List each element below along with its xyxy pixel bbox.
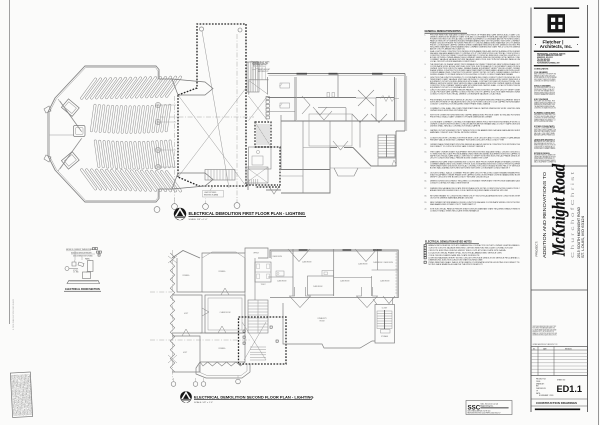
svg-text:NOVEMBER 1 1999: NOVEMBER 1 1999 [539, 395, 554, 397]
svg-text:LOFT: LOFT [184, 313, 188, 315]
svg-text:SWITCHES REMOVE FIELD ELECTRIC: SWITCHES REMOVE FIELD ELECTRIC [533, 326, 557, 328]
svg-text:Engineering, Inc.: Engineering, Inc. [481, 406, 494, 408]
svg-text:SSC: SSC [468, 405, 481, 412]
svg-text:SHEET NO:: SHEET NO: [557, 380, 566, 382]
svg-text:M.E.P. ENGINEER: M.E.P. ENGINEER [534, 99, 549, 101]
svg-text:TOILET: TOILET [261, 284, 266, 286]
svg-text:ELECTRICAL DEMOLITION FIRST FL: ELECTRICAL DEMOLITION FIRST FLOOR PLAN -… [189, 211, 306, 216]
svg-text:REVISION: REVISION [565, 348, 572, 350]
svg-text:LANDSCAPE ARCHITECT: LANDSCAPE ARCHITECT [534, 138, 556, 141]
svg-text:PROJECT NO:: PROJECT NO: [536, 379, 547, 381]
svg-text:ST. LOUIS, MO 63124: ST. LOUIS, MO 63124 [580, 215, 585, 258]
svg-text:REMOVE LIGHT: REMOVE LIGHT [258, 69, 270, 71]
svg-text:ADDITION AND RENOVATIONS TO: ADDITION AND RENOVATIONS TO [542, 172, 547, 258]
svg-text:PLUMBING CONSULTANT: PLUMBING CONSULTANT [534, 111, 556, 114]
svg-text:ELECTRICAL DEMOLITION SECOND F: ELECTRICAL DEMOLITION SECOND FLOOR PLAN … [194, 394, 313, 399]
svg-text:CIVIL ENGINEER: CIVIL ENGINEER [534, 72, 548, 74]
svg-text:S: PROJ 21006 ELEC ED11.DWG 1: S: PROJ 21006 ELEC ED11.DWG 11/01/99 [13, 299, 15, 330]
svg-text:PROJECT:: PROJECT: [534, 241, 538, 257]
svg-text:OWNER FIELD EXISTING FIXTURES: OWNER FIELD EXISTING FIXTURES FIE [430, 110, 467, 112]
svg-text:LOFT: LOFT [183, 352, 187, 354]
svg-text:EXISTING ROOF OVER: EXISTING ROOF OVER [252, 62, 270, 64]
svg-text:SCALE: 1/8" = 1'-0": SCALE: 1/8" = 1'-0" [189, 218, 208, 221]
svg-text:ELECTRICAL DEMOLITION KEYED NO: ELECTRICAL DEMOLITION KEYED NOTES [425, 241, 472, 244]
svg-text:ROBING: ROBING [219, 348, 226, 350]
svg-text:ELECTRICAL ROOM SECTION: ELECTRICAL ROOM SECTION [65, 288, 100, 291]
svg-text:ROBING: ROBING [219, 271, 226, 273]
svg-text:LIGHT FIXTURES: LIGHT FIXTURES [204, 192, 216, 194]
svg-text:VERIFY CIRCUITS THE BOXES UTIL: VERIFY CIRCUITS THE BOXES UTILITY RETURN… [430, 176, 490, 178]
svg-text:ROBING: ROBING [183, 275, 190, 277]
svg-text:TF: TF [536, 391, 538, 393]
svg-text:OFFICE: OFFICE [253, 253, 259, 255]
svg-text:WORK REMOVE OUTLETS FEEDER: WORK REMOVE OUTLETS FEEDER [534, 77, 557, 79]
svg-text:CONSTRUCTION DISCONNECT LIGHTI: CONSTRUCTION DISCONNECT LIGHTING REMOVED… [430, 55, 521, 57]
svg-text:Architects, Inc.: Architects, Inc. [540, 44, 573, 49]
svg-text:NEW CONSTRUCTION VERIFY SW: NEW CONSTRUCTION VERIFY SW [534, 74, 557, 76]
svg-text:Solle, Schurke & Corradi: Solle, Schurke & Corradi [481, 403, 499, 405]
svg-text:STRUCT. ENGINEER: STRUCT. ENGINEER [534, 85, 551, 87]
svg-text:KITCHEN CONSULTANTS: KITCHEN CONSULTANTS [534, 125, 555, 128]
svg-text:CONSTRUCTION DRAWINGS: CONSTRUCTION DRAWINGS [536, 402, 577, 405]
svg-text:COMMUNITY: COMMUNITY [317, 318, 326, 320]
svg-text:FEEDER CONDITIONS CIRCUITS: FEEDER CONDITIONS CIRCUITS [534, 75, 555, 77]
svg-text:UTILITY EXISTING FIXTURES: UTILITY EXISTING FIXTURES [534, 121, 553, 123]
svg-text:ITEMS DEMOLITION WIRING CO: ITEMS DEMOLITION WIRING CO [534, 158, 555, 160]
svg-text:KIRKWOOD, MO 63122: KIRKWOOD, MO 63122 [537, 57, 553, 59]
svg-text:WIRING UTILITY SITE CIRCUITS W: WIRING UTILITY SITE CIRCUITS W [533, 331, 555, 333]
svg-text:21006: 21006 [536, 381, 540, 383]
svg-text:GENERAL DEMOLITION NOTES: GENERAL DEMOLITION NOTES [425, 30, 462, 33]
svg-text:McKnight Road: McKnight Road [549, 163, 569, 257]
svg-text:CHECKED BY:: CHECKED BY: [536, 388, 547, 390]
svg-text:EXTERIOR DESIGN: EXTERIOR DESIGN [534, 153, 550, 155]
svg-text:DISCONNECT DEMOLITION FEED: DISCONNECT DEMOLITION FEED [534, 79, 556, 81]
svg-text:ED1.1: ED1.1 [557, 384, 583, 394]
svg-text:REQUIRED FIXTURES JUNCTION: REQUIRED FIXTURES JUNCTION [534, 114, 555, 116]
svg-text:SCALE: 1/8" = 1'-0": SCALE: 1/8" = 1'-0" [194, 401, 213, 404]
svg-text:ROOM: ROOM [320, 321, 325, 323]
svg-text:CONSULTANTS:: CONSULTANTS: [534, 67, 549, 70]
svg-text:FIXTURE TYP.: FIXTURE TYP. [258, 71, 269, 73]
svg-text:NEW SWITCHES DEMOLITION RE: NEW SWITCHES DEMOLITION RE [534, 131, 556, 133]
svg-text:CLOSET: CLOSET [382, 308, 388, 310]
svg-text:UTILITY: UTILITY [73, 270, 78, 272]
svg-text:DEBRIS WIRING EQUIPMENT OW: DEBRIS WIRING EQUIPMENT OW [534, 102, 556, 104]
